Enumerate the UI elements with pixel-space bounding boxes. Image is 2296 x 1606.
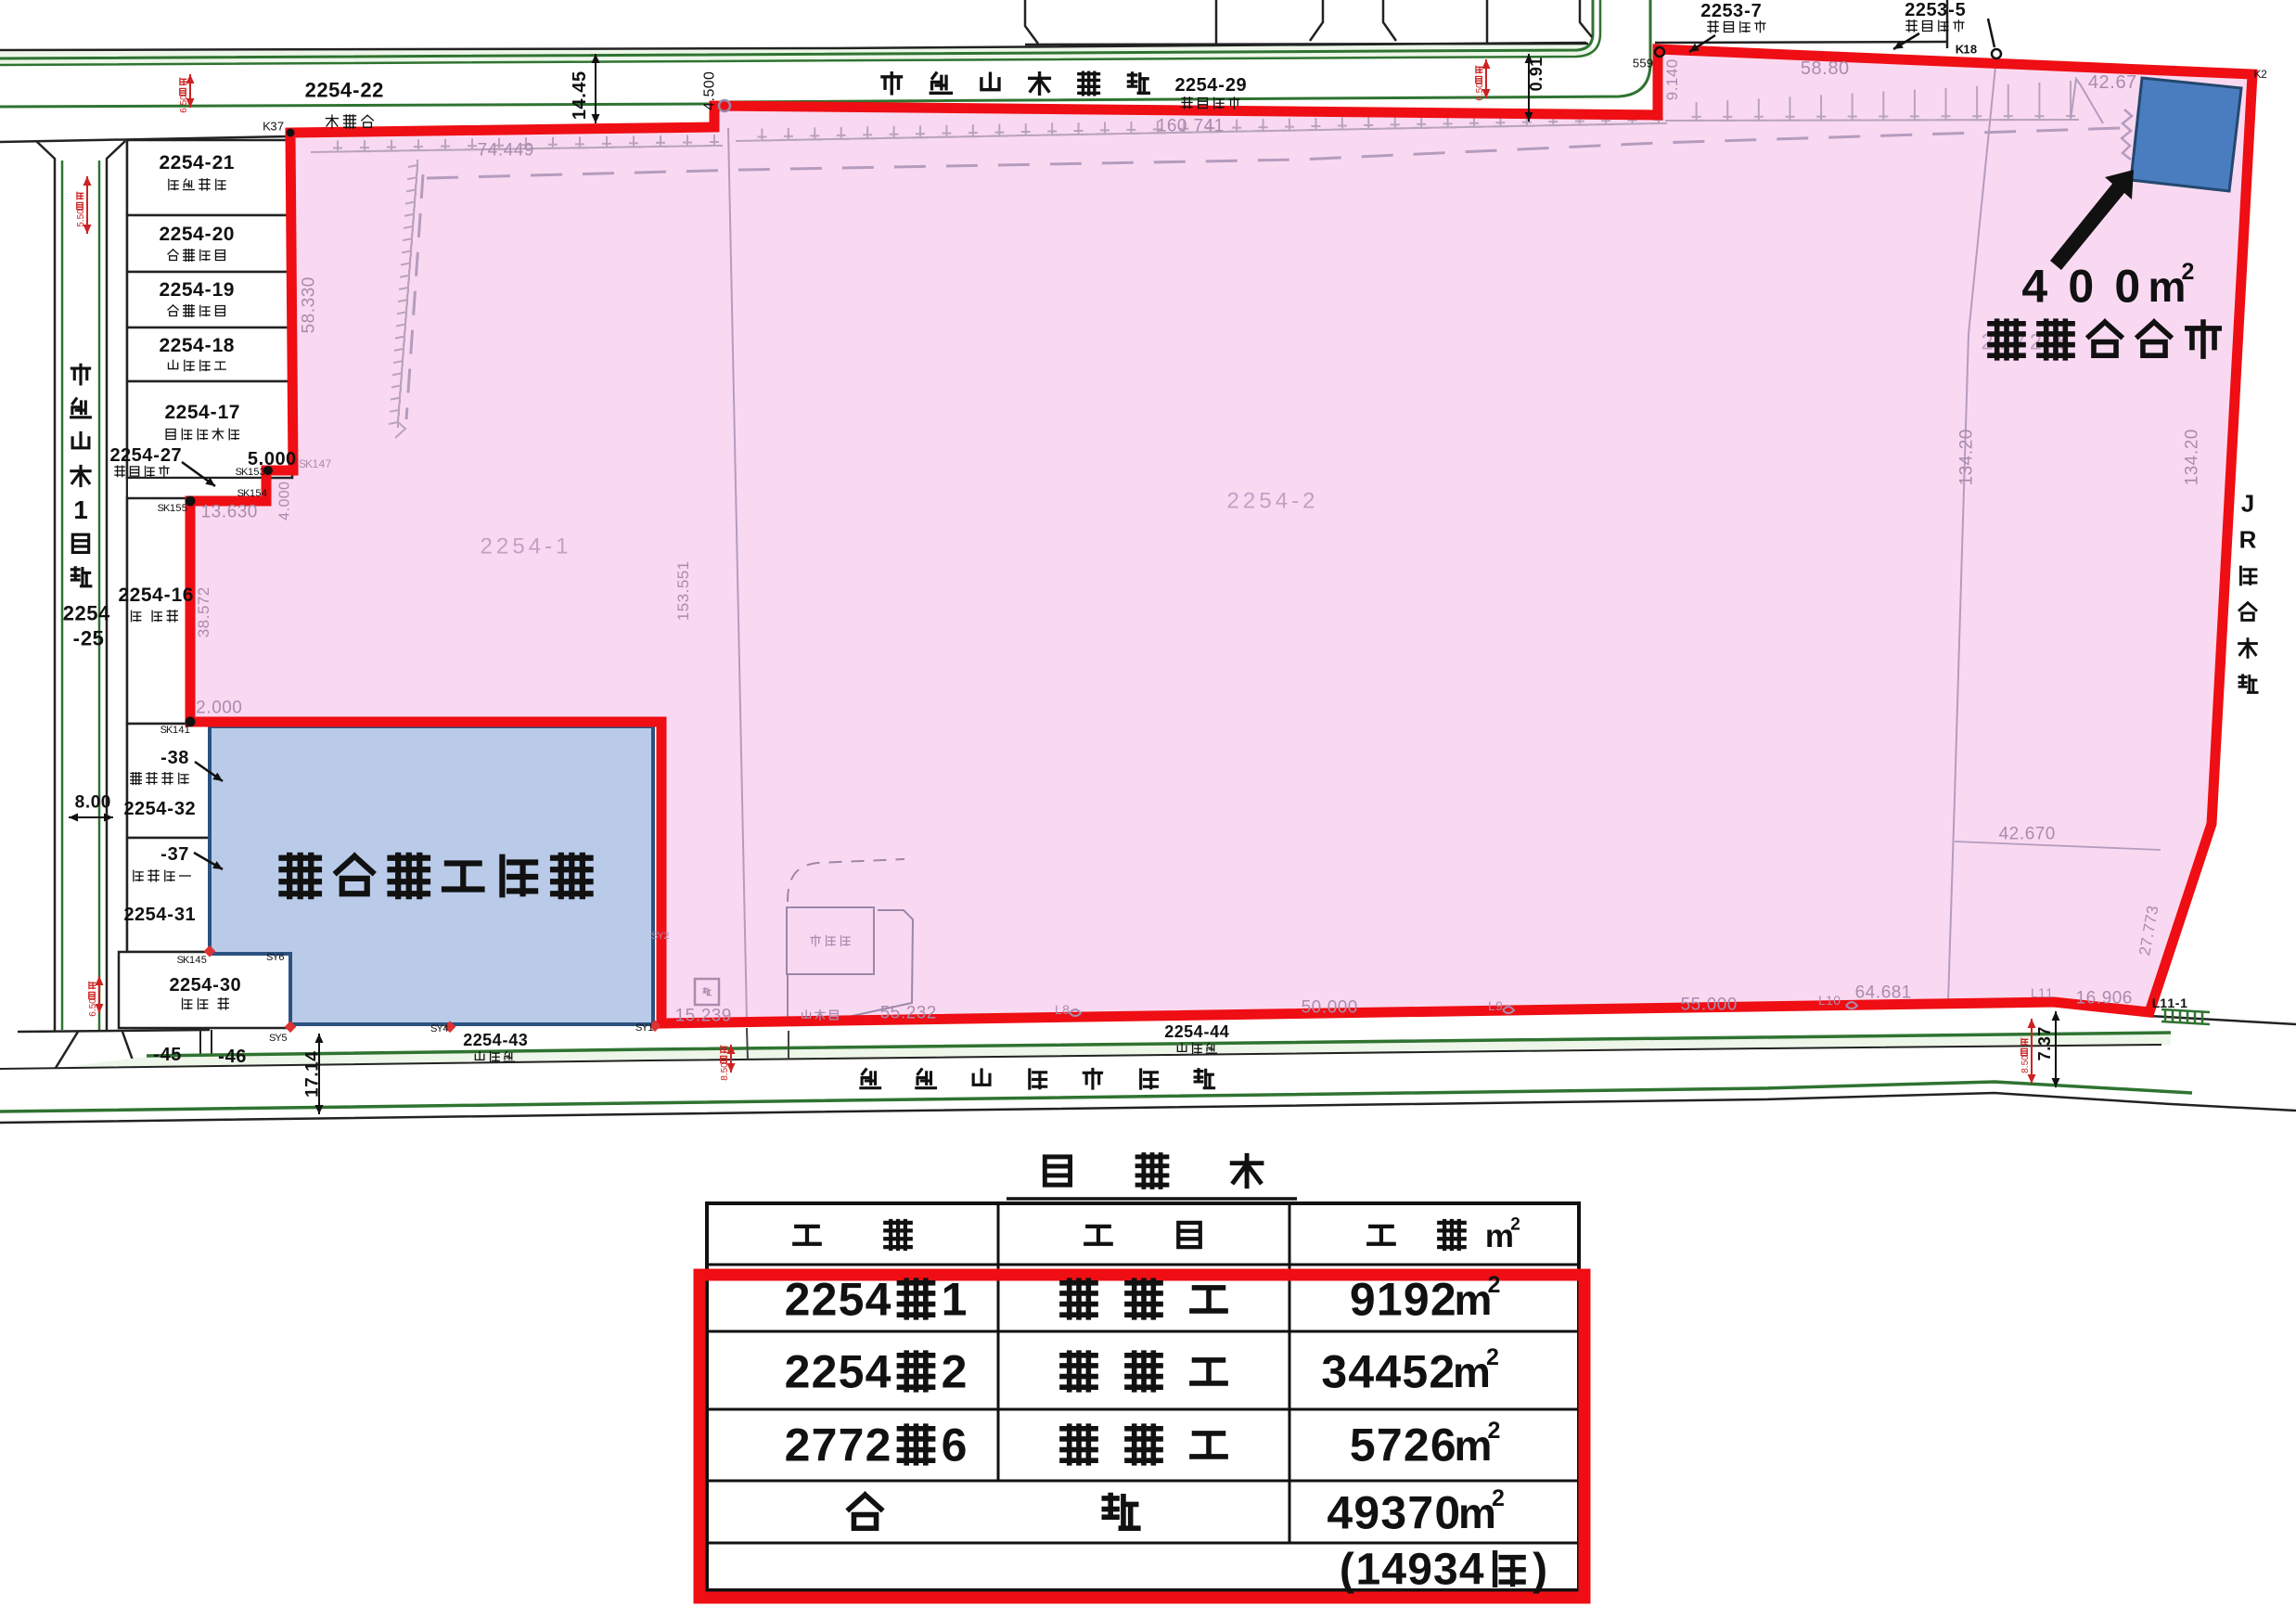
svg-text:7: 7 [171, 445, 181, 466]
svg-text:4: 4 [1866, 983, 1876, 1003]
svg-text:4: 4 [1327, 1486, 1353, 1538]
svg-text:-: - [205, 335, 212, 356]
svg-text:0: 0 [277, 482, 293, 490]
svg-text:5: 5 [1956, 0, 1966, 20]
svg-text:1: 1 [2038, 985, 2046, 1000]
svg-text:5: 5 [141, 585, 152, 606]
svg-text:.: . [1527, 77, 1546, 82]
svg-text:9: 9 [2102, 989, 2112, 1009]
svg-text:.: . [2110, 72, 2115, 93]
svg-text:2: 2 [171, 152, 182, 173]
svg-text:J: J [2241, 489, 2254, 517]
svg-text:3: 3 [917, 1004, 927, 1023]
svg-text:4: 4 [1204, 117, 1214, 136]
svg-text:8: 8 [1892, 983, 1902, 1003]
svg-text:0: 0 [1527, 82, 1546, 91]
svg-text:8: 8 [1811, 58, 1821, 79]
svg-text:1: 1 [250, 488, 255, 499]
svg-text:1: 1 [201, 503, 212, 522]
svg-text:4: 4 [152, 585, 163, 606]
svg-text:8: 8 [1970, 42, 1977, 56]
svg-text:L: L [1055, 1002, 1062, 1017]
svg-text:3: 3 [1433, 1546, 1458, 1595]
svg-text:2: 2 [496, 533, 508, 559]
svg-text:-: - [153, 445, 160, 466]
svg-text:2: 2 [1164, 1022, 1174, 1041]
svg-text:-: - [353, 79, 359, 102]
svg-text:1: 1 [2160, 996, 2167, 1010]
svg-text:6: 6 [1167, 117, 1177, 136]
svg-text:4: 4 [303, 1051, 323, 1061]
svg-text:6: 6 [278, 952, 284, 963]
svg-text:5: 5 [674, 571, 692, 579]
svg-text:5: 5 [182, 335, 193, 356]
svg-text:5: 5 [328, 79, 340, 102]
svg-text:0: 0 [2112, 989, 2123, 1009]
svg-text:1: 1 [570, 109, 590, 120]
svg-text:7: 7 [2126, 72, 2136, 93]
svg-text:7: 7 [812, 1419, 838, 1471]
svg-text:7: 7 [303, 1077, 323, 1087]
svg-text:2: 2 [176, 402, 187, 423]
svg-text:5: 5 [171, 1045, 181, 1065]
svg-text:6: 6 [227, 503, 237, 522]
svg-text:.: . [2097, 989, 2101, 1009]
svg-text:2: 2 [2098, 72, 2109, 93]
svg-text:4: 4 [1276, 488, 1288, 513]
svg-text:6: 6 [2086, 989, 2097, 1009]
svg-text:2: 2 [1186, 75, 1196, 96]
svg-text:4: 4 [277, 512, 293, 520]
svg-text:.: . [303, 1072, 323, 1076]
svg-text:8: 8 [178, 748, 188, 768]
svg-text:1: 1 [1157, 117, 1167, 136]
svg-text:1: 1 [189, 955, 195, 966]
svg-text:0: 0 [2046, 825, 2056, 844]
svg-text:4: 4 [508, 1031, 518, 1049]
svg-text:5: 5 [1633, 56, 1639, 70]
svg-text:-: - [1948, 0, 1955, 20]
svg-text:7: 7 [839, 1419, 865, 1471]
svg-text:0: 0 [1833, 993, 1841, 1008]
svg-text:2: 2 [160, 445, 171, 466]
svg-text:4: 4 [1207, 75, 1218, 96]
svg-text:2: 2 [171, 335, 182, 356]
svg-text:4: 4 [866, 1273, 891, 1325]
svg-text:2: 2 [135, 905, 145, 925]
svg-text:-: - [218, 1047, 224, 1067]
svg-text:4: 4 [1999, 825, 2009, 844]
svg-text:5: 5 [839, 1273, 865, 1325]
svg-text:1: 1 [1214, 117, 1225, 136]
svg-text:7: 7 [277, 119, 284, 133]
svg-text:4: 4 [488, 141, 498, 161]
svg-text:5: 5 [1926, 0, 1936, 20]
svg-text:2: 2 [1302, 488, 1315, 513]
svg-text:1: 1 [218, 402, 229, 423]
svg-text:R: R [2239, 525, 2257, 553]
svg-text:.: . [1663, 86, 1681, 91]
svg-text:2: 2 [1916, 0, 1926, 20]
svg-text:4: 4 [1375, 1345, 1401, 1397]
svg-text:5: 5 [1350, 1419, 1376, 1471]
svg-text:2: 2 [906, 1004, 917, 1023]
svg-text:7: 7 [1407, 1486, 1433, 1538]
svg-text:m: m [1455, 1421, 1493, 1470]
svg-text:7: 7 [2035, 1027, 2054, 1036]
svg-text:5: 5 [482, 1031, 492, 1049]
svg-text:9: 9 [524, 141, 534, 161]
svg-text:2: 2 [74, 602, 85, 625]
svg-text:1: 1 [648, 1022, 653, 1034]
svg-text:.: . [696, 1007, 700, 1026]
svg-text:2: 2 [1174, 1022, 1184, 1041]
svg-text:2: 2 [1488, 1418, 1501, 1444]
svg-text:2: 2 [212, 224, 224, 245]
svg-text:1: 1 [1377, 1273, 1403, 1325]
svg-text:7: 7 [178, 844, 188, 865]
svg-text:5: 5 [182, 224, 193, 245]
svg-text:0: 0 [230, 975, 240, 996]
svg-text:2: 2 [1700, 1, 1711, 21]
svg-text:5: 5 [86, 602, 97, 625]
svg-text:2: 2 [185, 799, 195, 819]
svg-text:2: 2 [81, 627, 92, 650]
svg-text:2: 2 [1243, 488, 1255, 513]
svg-text:2: 2 [1430, 1273, 1456, 1325]
svg-text:2: 2 [180, 975, 190, 996]
svg-text:0: 0 [2068, 260, 2094, 312]
svg-text:m: m [1455, 1276, 1493, 1324]
svg-text:3: 3 [237, 503, 248, 522]
svg-text:0: 0 [101, 793, 111, 813]
svg-text:2: 2 [1486, 1344, 1499, 1370]
svg-text:.: . [1822, 58, 1828, 79]
svg-text:0: 0 [2114, 260, 2140, 312]
svg-text:7: 7 [2035, 1051, 2054, 1060]
svg-text:9: 9 [1350, 1273, 1376, 1325]
svg-text:6: 6 [942, 1419, 968, 1471]
svg-text:-: - [502, 1031, 507, 1049]
svg-text:2: 2 [121, 445, 131, 466]
svg-text:4: 4 [201, 975, 212, 996]
svg-text:4: 4 [178, 725, 184, 736]
svg-text:5: 5 [702, 89, 718, 97]
svg-text:6: 6 [2115, 72, 2125, 93]
svg-text:(: ( [1340, 1546, 1354, 1595]
svg-text:6: 6 [2025, 825, 2035, 844]
svg-text:0: 0 [222, 699, 232, 718]
svg-text:3: 3 [195, 629, 212, 637]
svg-text:3: 3 [2035, 1036, 2054, 1046]
svg-text:-: - [205, 279, 212, 301]
svg-text:2: 2 [2183, 440, 2202, 450]
svg-text:3: 3 [712, 1007, 722, 1026]
svg-text:3: 3 [2183, 466, 2202, 476]
svg-text:6.50: 6.50 [179, 95, 189, 113]
svg-text:0: 0 [275, 449, 285, 469]
svg-text:2: 2 [63, 602, 74, 625]
svg-text:5: 5 [1302, 998, 1312, 1018]
svg-text:3: 3 [212, 503, 222, 522]
svg-text:1: 1 [248, 467, 253, 478]
svg-text:4: 4 [2021, 260, 2047, 312]
svg-text:-: - [167, 799, 173, 819]
svg-text:5: 5 [1691, 996, 1701, 1015]
svg-text:2: 2 [481, 533, 493, 559]
svg-text:4: 4 [443, 1023, 448, 1034]
svg-text:9: 9 [722, 1007, 732, 1026]
svg-text:-: - [167, 905, 173, 925]
svg-text:1: 1 [556, 533, 568, 559]
svg-text:7: 7 [2035, 825, 2046, 844]
svg-text:.: . [674, 589, 692, 594]
svg-text:3: 3 [260, 467, 265, 478]
svg-text:2: 2 [866, 1419, 891, 1471]
svg-text:2: 2 [2261, 68, 2267, 81]
svg-text:2: 2 [305, 79, 316, 102]
svg-text:3: 3 [1937, 0, 1947, 20]
svg-text:2: 2 [812, 1273, 838, 1325]
svg-text:4: 4 [866, 1345, 891, 1397]
svg-text:.: . [2035, 1047, 2054, 1051]
svg-text:4: 4 [1459, 1546, 1484, 1595]
svg-text:2: 2 [165, 402, 176, 423]
svg-text:.: . [498, 141, 503, 161]
svg-text:0: 0 [248, 503, 258, 522]
svg-text:5: 5 [146, 905, 156, 925]
svg-text:-: - [160, 844, 167, 865]
svg-text:3: 3 [168, 748, 178, 768]
svg-text:3: 3 [1380, 1486, 1406, 1538]
svg-text:8.50: 8.50 [720, 1062, 730, 1081]
svg-text:2: 2 [1227, 488, 1239, 513]
svg-text:4: 4 [340, 79, 353, 102]
svg-text:4: 4 [504, 141, 514, 161]
svg-text:4: 4 [193, 279, 204, 301]
svg-text:L: L [2031, 985, 2038, 1000]
svg-text:1: 1 [674, 561, 692, 570]
svg-text:2: 2 [135, 799, 145, 819]
svg-text:5: 5 [1639, 56, 1646, 70]
svg-text:4: 4 [319, 457, 326, 470]
svg-text:3: 3 [174, 905, 185, 925]
svg-text:6: 6 [1430, 1419, 1456, 1471]
svg-text:1: 1 [73, 495, 88, 524]
svg-text:5: 5 [255, 488, 261, 499]
svg-text:2: 2 [942, 1345, 968, 1397]
svg-text:4: 4 [193, 152, 204, 173]
svg-text:3: 3 [174, 799, 185, 819]
svg-text:2: 2 [160, 152, 171, 173]
svg-text:1: 1 [173, 725, 178, 736]
svg-text:0: 0 [212, 699, 222, 718]
svg-text:.: . [702, 97, 718, 101]
svg-text:4: 4 [514, 141, 524, 161]
svg-text:1: 1 [674, 612, 692, 621]
svg-text:0: 0 [1348, 998, 1358, 1018]
svg-text:2: 2 [1712, 1, 1722, 21]
svg-text:4: 4 [262, 488, 267, 499]
svg-text:-: - [545, 533, 552, 559]
svg-text:8: 8 [75, 793, 85, 813]
svg-text:0: 0 [1957, 430, 1977, 440]
svg-text:m: m [1453, 1348, 1491, 1396]
svg-text:0: 0 [1312, 998, 1322, 1018]
svg-text:8: 8 [195, 620, 212, 628]
svg-text:8.50: 8.50 [2020, 1055, 2031, 1073]
svg-text:1: 1 [675, 1007, 686, 1026]
svg-text:4: 4 [1381, 1546, 1406, 1595]
svg-text:0: 0 [277, 490, 293, 498]
svg-text:9: 9 [1647, 56, 1653, 70]
svg-text:2: 2 [123, 905, 134, 925]
svg-text:5: 5 [674, 580, 692, 588]
svg-text:0: 0 [1177, 117, 1187, 136]
svg-text:3: 3 [168, 844, 178, 865]
svg-text:4: 4 [195, 955, 200, 966]
svg-text:2: 2 [473, 1031, 482, 1049]
svg-text:2: 2 [160, 224, 171, 245]
svg-text:1: 1 [2180, 996, 2187, 1010]
svg-text:8: 8 [1828, 58, 1838, 79]
svg-text:0: 0 [1717, 996, 1727, 1015]
svg-text:0: 0 [1328, 998, 1338, 1018]
svg-text:0: 0 [224, 224, 235, 245]
svg-text:.: . [300, 308, 319, 313]
svg-text:4: 4 [2183, 455, 2202, 465]
svg-text:4: 4 [1348, 1345, 1374, 1397]
svg-text:5: 5 [182, 152, 193, 173]
svg-text:5: 5 [191, 975, 201, 996]
svg-text:0: 0 [702, 71, 718, 80]
svg-text:3: 3 [300, 288, 319, 298]
svg-text:6.50: 6.50 [88, 998, 98, 1017]
svg-text:7: 7 [1377, 1419, 1403, 1471]
svg-text:1: 1 [212, 335, 224, 356]
svg-text:5.50: 5.50 [76, 209, 86, 227]
svg-text:5: 5 [1722, 1, 1732, 21]
svg-text:5: 5 [1259, 488, 1271, 513]
svg-text:1: 1 [2076, 989, 2086, 1009]
svg-text:4: 4 [142, 445, 153, 466]
svg-text:-: - [1744, 1, 1751, 21]
svg-text:2: 2 [360, 79, 371, 102]
svg-text:5: 5 [132, 445, 142, 466]
svg-text:7: 7 [1194, 117, 1204, 136]
svg-text:0: 0 [1434, 1486, 1460, 1538]
svg-text:.: . [570, 93, 590, 98]
svg-text:0: 0 [1707, 996, 1717, 1015]
svg-text:.: . [277, 507, 293, 511]
svg-text:6.50: 6.50 [1475, 83, 1485, 101]
svg-text:-: - [1218, 75, 1225, 96]
svg-text:2: 2 [2182, 259, 2195, 285]
svg-text:2: 2 [1510, 1215, 1520, 1235]
svg-text:2: 2 [1404, 1419, 1430, 1471]
svg-text:5: 5 [146, 799, 156, 819]
svg-text:-: - [212, 975, 219, 996]
svg-text:9: 9 [1407, 1546, 1432, 1595]
svg-text:4: 4 [1194, 1022, 1203, 1041]
svg-text:2: 2 [663, 931, 669, 942]
svg-text:2: 2 [316, 79, 327, 102]
svg-text:0: 0 [264, 449, 275, 469]
svg-text:.: . [195, 615, 212, 620]
svg-text:4: 4 [98, 602, 110, 625]
svg-text:.: . [1957, 450, 1977, 455]
svg-text:3: 3 [1321, 1345, 1347, 1397]
svg-text:2: 2 [463, 1031, 472, 1049]
svg-text:1: 1 [2167, 996, 2174, 1010]
svg-text:2: 2 [171, 224, 182, 245]
svg-text:5: 5 [839, 1345, 865, 1397]
svg-text:4: 4 [193, 224, 204, 245]
svg-text:0: 0 [1338, 998, 1348, 1018]
svg-text:-: - [164, 585, 171, 606]
svg-text:0: 0 [1839, 58, 1849, 79]
svg-text:1: 1 [170, 503, 175, 514]
svg-text:.: . [85, 793, 90, 813]
svg-text:.: . [1322, 998, 1327, 1018]
svg-text:9: 9 [1404, 1273, 1430, 1325]
svg-text:5: 5 [674, 603, 692, 611]
svg-text:5: 5 [1402, 1345, 1428, 1397]
svg-text:2: 2 [171, 279, 182, 301]
svg-text:4: 4 [193, 335, 204, 356]
svg-text:4: 4 [199, 402, 210, 423]
svg-text:.: . [1701, 996, 1706, 1015]
svg-text:4: 4 [156, 799, 167, 819]
svg-text:5: 5 [281, 1033, 287, 1044]
svg-text:-: - [160, 748, 167, 768]
svg-text:5: 5 [300, 324, 319, 334]
svg-text:4: 4 [1957, 455, 1977, 465]
svg-text:4: 4 [570, 82, 590, 93]
svg-text:m: m [1458, 1489, 1496, 1537]
svg-text:.: . [2183, 450, 2202, 455]
svg-text:0: 0 [1727, 996, 1738, 1015]
svg-text:7: 7 [1751, 1, 1762, 21]
svg-text:0: 0 [702, 80, 718, 88]
svg-text:2: 2 [372, 79, 383, 102]
svg-text:7: 7 [229, 402, 240, 423]
svg-text:): ) [1533, 1546, 1547, 1595]
svg-text:1: 1 [2183, 476, 2202, 486]
svg-text:2: 2 [927, 1004, 937, 1023]
svg-text:0: 0 [286, 449, 296, 469]
svg-text:5: 5 [1184, 1022, 1193, 1041]
svg-text:2: 2 [160, 279, 171, 301]
svg-text:2: 2 [2009, 825, 2020, 844]
svg-text:5: 5 [570, 71, 590, 82]
svg-text:6: 6 [2123, 989, 2133, 1009]
svg-text:1: 1 [224, 152, 235, 173]
svg-text:4: 4 [2088, 72, 2098, 93]
svg-text:2: 2 [785, 1273, 811, 1325]
svg-text:5: 5 [175, 503, 181, 514]
svg-text:4: 4 [1210, 1022, 1219, 1041]
svg-text:2: 2 [119, 585, 130, 606]
svg-text:1: 1 [1356, 1546, 1381, 1595]
svg-text:0: 0 [1663, 59, 1681, 68]
svg-text:3: 3 [519, 1031, 528, 1049]
svg-text:9: 9 [1527, 67, 1546, 76]
svg-text:6: 6 [183, 585, 194, 606]
svg-text:2: 2 [1174, 75, 1185, 96]
svg-text:3: 3 [220, 975, 230, 996]
svg-text:2: 2 [169, 975, 179, 996]
